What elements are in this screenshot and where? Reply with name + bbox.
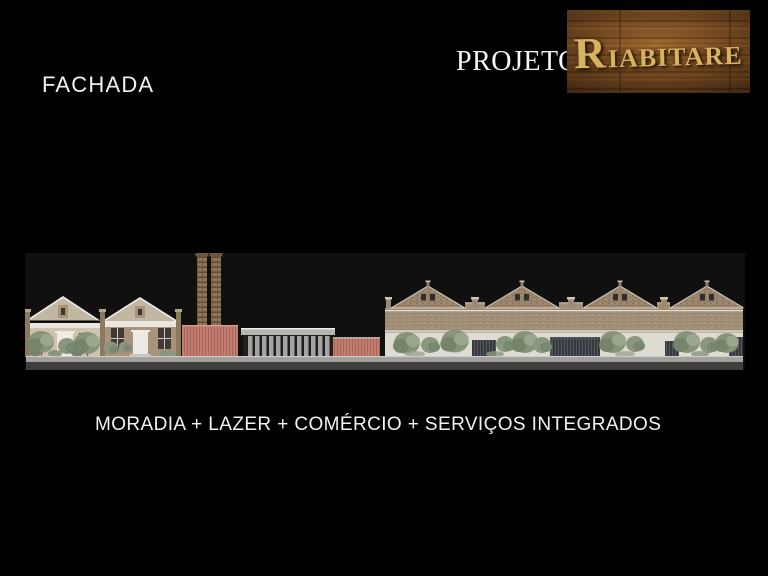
page-title: FACHADA xyxy=(42,72,154,98)
red-wall-right xyxy=(333,337,380,356)
facade-elevation-image xyxy=(25,253,745,370)
colonnade-pavilion xyxy=(241,328,335,356)
project-label: PROJETO xyxy=(456,46,579,78)
presentation-slide: FACHADA PROJETO RIABITARE xyxy=(0,0,768,576)
slide-caption: MORADIA + LAZER + COMÉRCIO + SERVIÇOS IN… xyxy=(95,414,661,436)
riabitare-logo-text: RIABITARE xyxy=(574,27,744,75)
riabitare-logo: RIABITARE xyxy=(567,10,750,93)
facade-elevation-drawing xyxy=(25,253,745,370)
red-wall-and-chimneys xyxy=(182,253,238,357)
ground xyxy=(26,356,743,370)
